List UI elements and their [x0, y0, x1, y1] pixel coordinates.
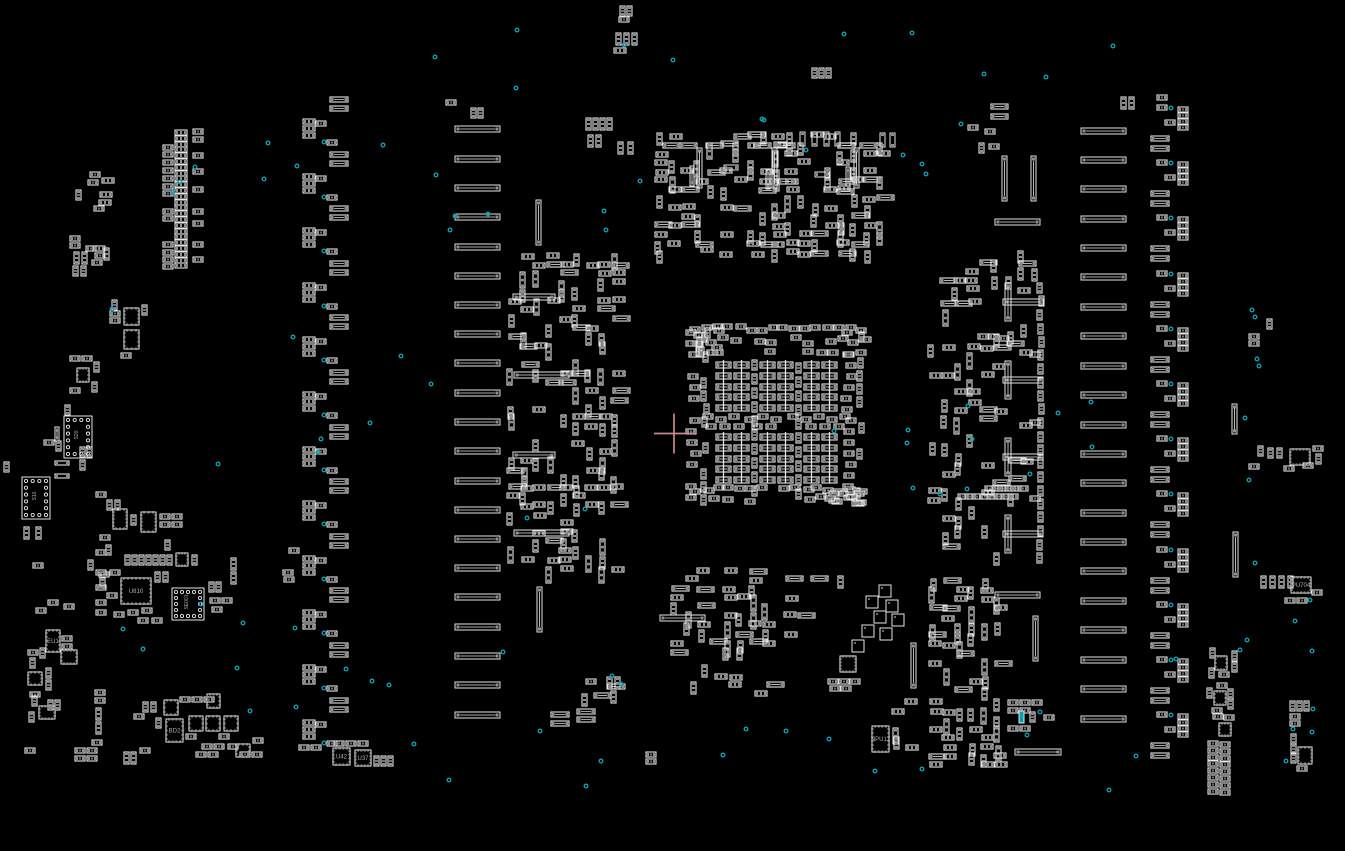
svg-text:S20: S20 [74, 430, 80, 439]
svg-text:NPU12: NPU12 [871, 737, 891, 743]
svg-text:U42: U42 [336, 755, 348, 761]
svg-text:U37: U37 [357, 756, 369, 762]
svg-text:S10: S10 [32, 491, 38, 500]
svg-text:BD2: BD2 [169, 729, 181, 735]
svg-text:U810: U810 [129, 589, 144, 595]
svg-text:EU1: EU1 [47, 639, 59, 645]
svg-text:SE001: SE001 [184, 594, 190, 609]
svg-text:PU704: PU704 [1292, 583, 1311, 589]
